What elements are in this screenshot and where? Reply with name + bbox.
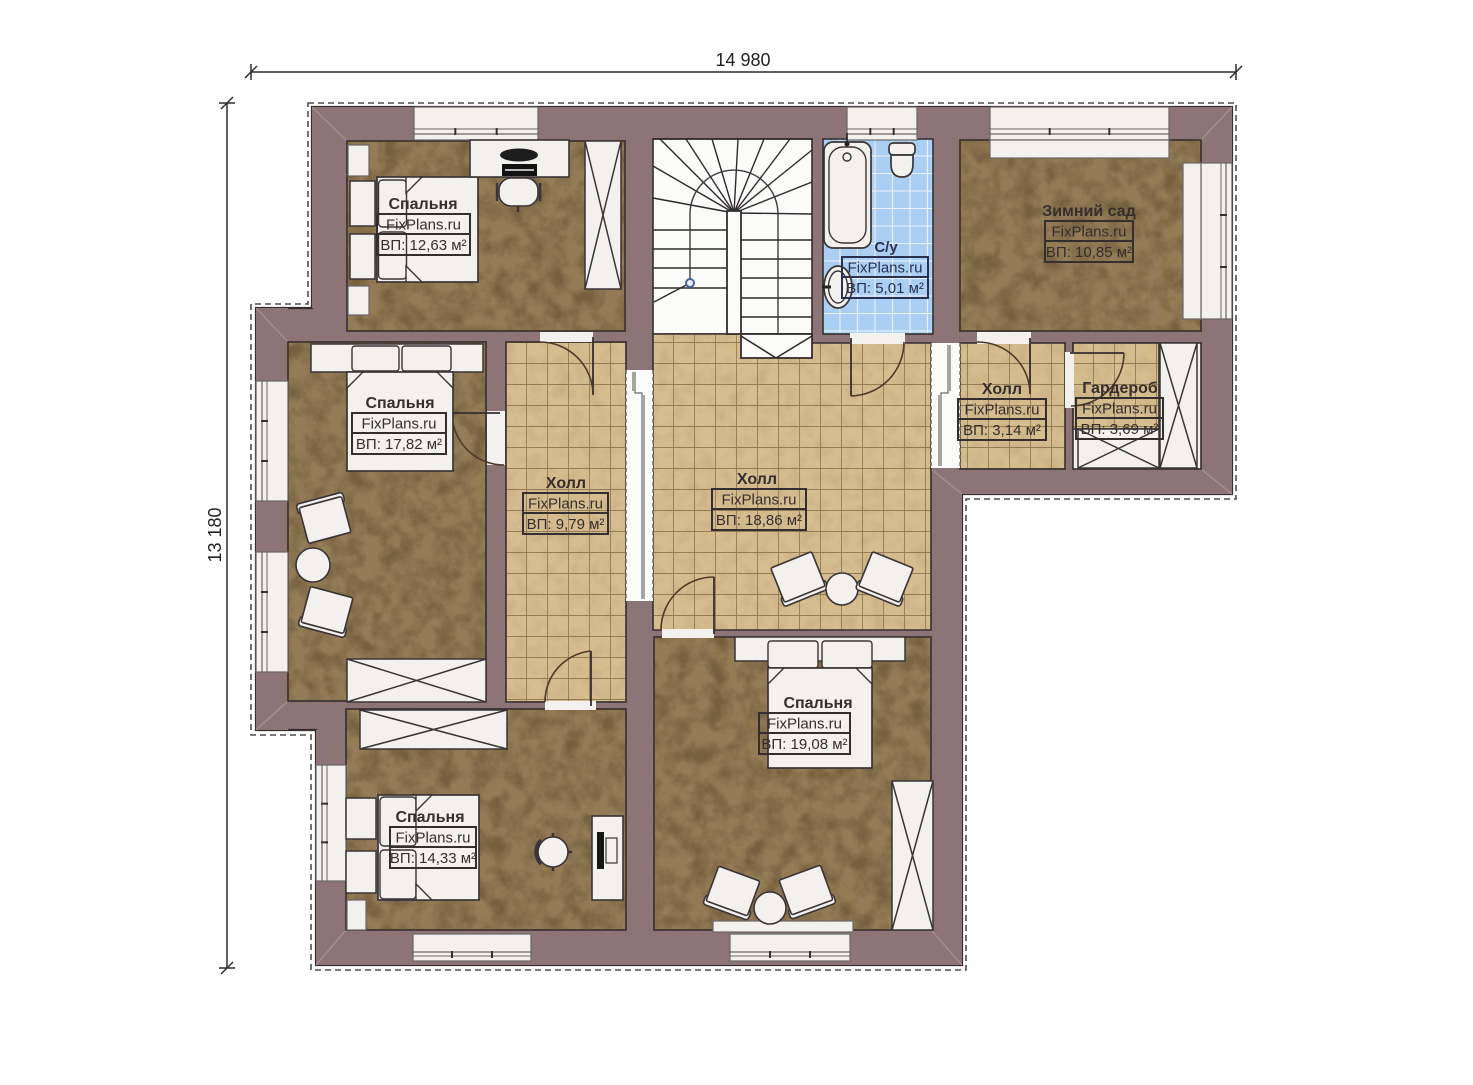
svg-text:FixPlans.ru: FixPlans.ru [528, 496, 603, 513]
svg-text:FixPlans.ru: FixPlans.ru [767, 716, 842, 733]
svg-text:ВП: 10,85 м²: ВП: 10,85 м² [1046, 244, 1132, 261]
svg-text:Гардероб: Гардероб [1082, 380, 1158, 397]
svg-text:14 980: 14 980 [715, 50, 770, 70]
svg-text:ВП: 5,01 м²: ВП: 5,01 м² [846, 280, 924, 297]
svg-text:FixPlans.ru: FixPlans.ru [964, 402, 1039, 419]
svg-text:Холл: Холл [546, 475, 586, 492]
svg-text:ВП: 3,69 м²: ВП: 3,69 м² [1081, 421, 1159, 438]
svg-text:13 180: 13 180 [205, 507, 225, 562]
svg-text:ВП: 14,33 м²: ВП: 14,33 м² [390, 850, 476, 867]
svg-text:FixPlans.ru: FixPlans.ru [847, 260, 922, 277]
svg-text:ВП: 18,86 м²: ВП: 18,86 м² [716, 512, 802, 529]
svg-text:Зимний сад: Зимний сад [1042, 203, 1136, 220]
svg-text:Холл: Холл [982, 381, 1022, 398]
svg-text:Спальня: Спальня [395, 809, 464, 826]
svg-text:FixPlans.ru: FixPlans.ru [721, 492, 796, 509]
svg-text:ВП: 12,63 м²: ВП: 12,63 м² [380, 237, 466, 254]
svg-text:Спальня: Спальня [388, 196, 457, 213]
svg-text:FixPlans.ru: FixPlans.ru [1082, 401, 1157, 418]
svg-text:FixPlans.ru: FixPlans.ru [361, 416, 436, 433]
svg-text:ВП: 19,08 м²: ВП: 19,08 м² [761, 736, 847, 753]
svg-text:FixPlans.ru: FixPlans.ru [395, 830, 470, 847]
svg-text:Холл: Холл [737, 471, 777, 488]
svg-text:ВП: 3,14 м²: ВП: 3,14 м² [963, 422, 1041, 439]
svg-text:FixPlans.ru: FixPlans.ru [1051, 224, 1126, 241]
svg-text:FixPlans.ru: FixPlans.ru [386, 217, 461, 234]
svg-text:С/у: С/у [874, 239, 898, 256]
svg-text:Спальня: Спальня [365, 395, 434, 412]
svg-text:Спальня: Спальня [783, 695, 852, 712]
svg-text:ВП: 9,79 м²: ВП: 9,79 м² [527, 516, 605, 533]
svg-text:ВП: 17,82 м²: ВП: 17,82 м² [356, 436, 442, 453]
